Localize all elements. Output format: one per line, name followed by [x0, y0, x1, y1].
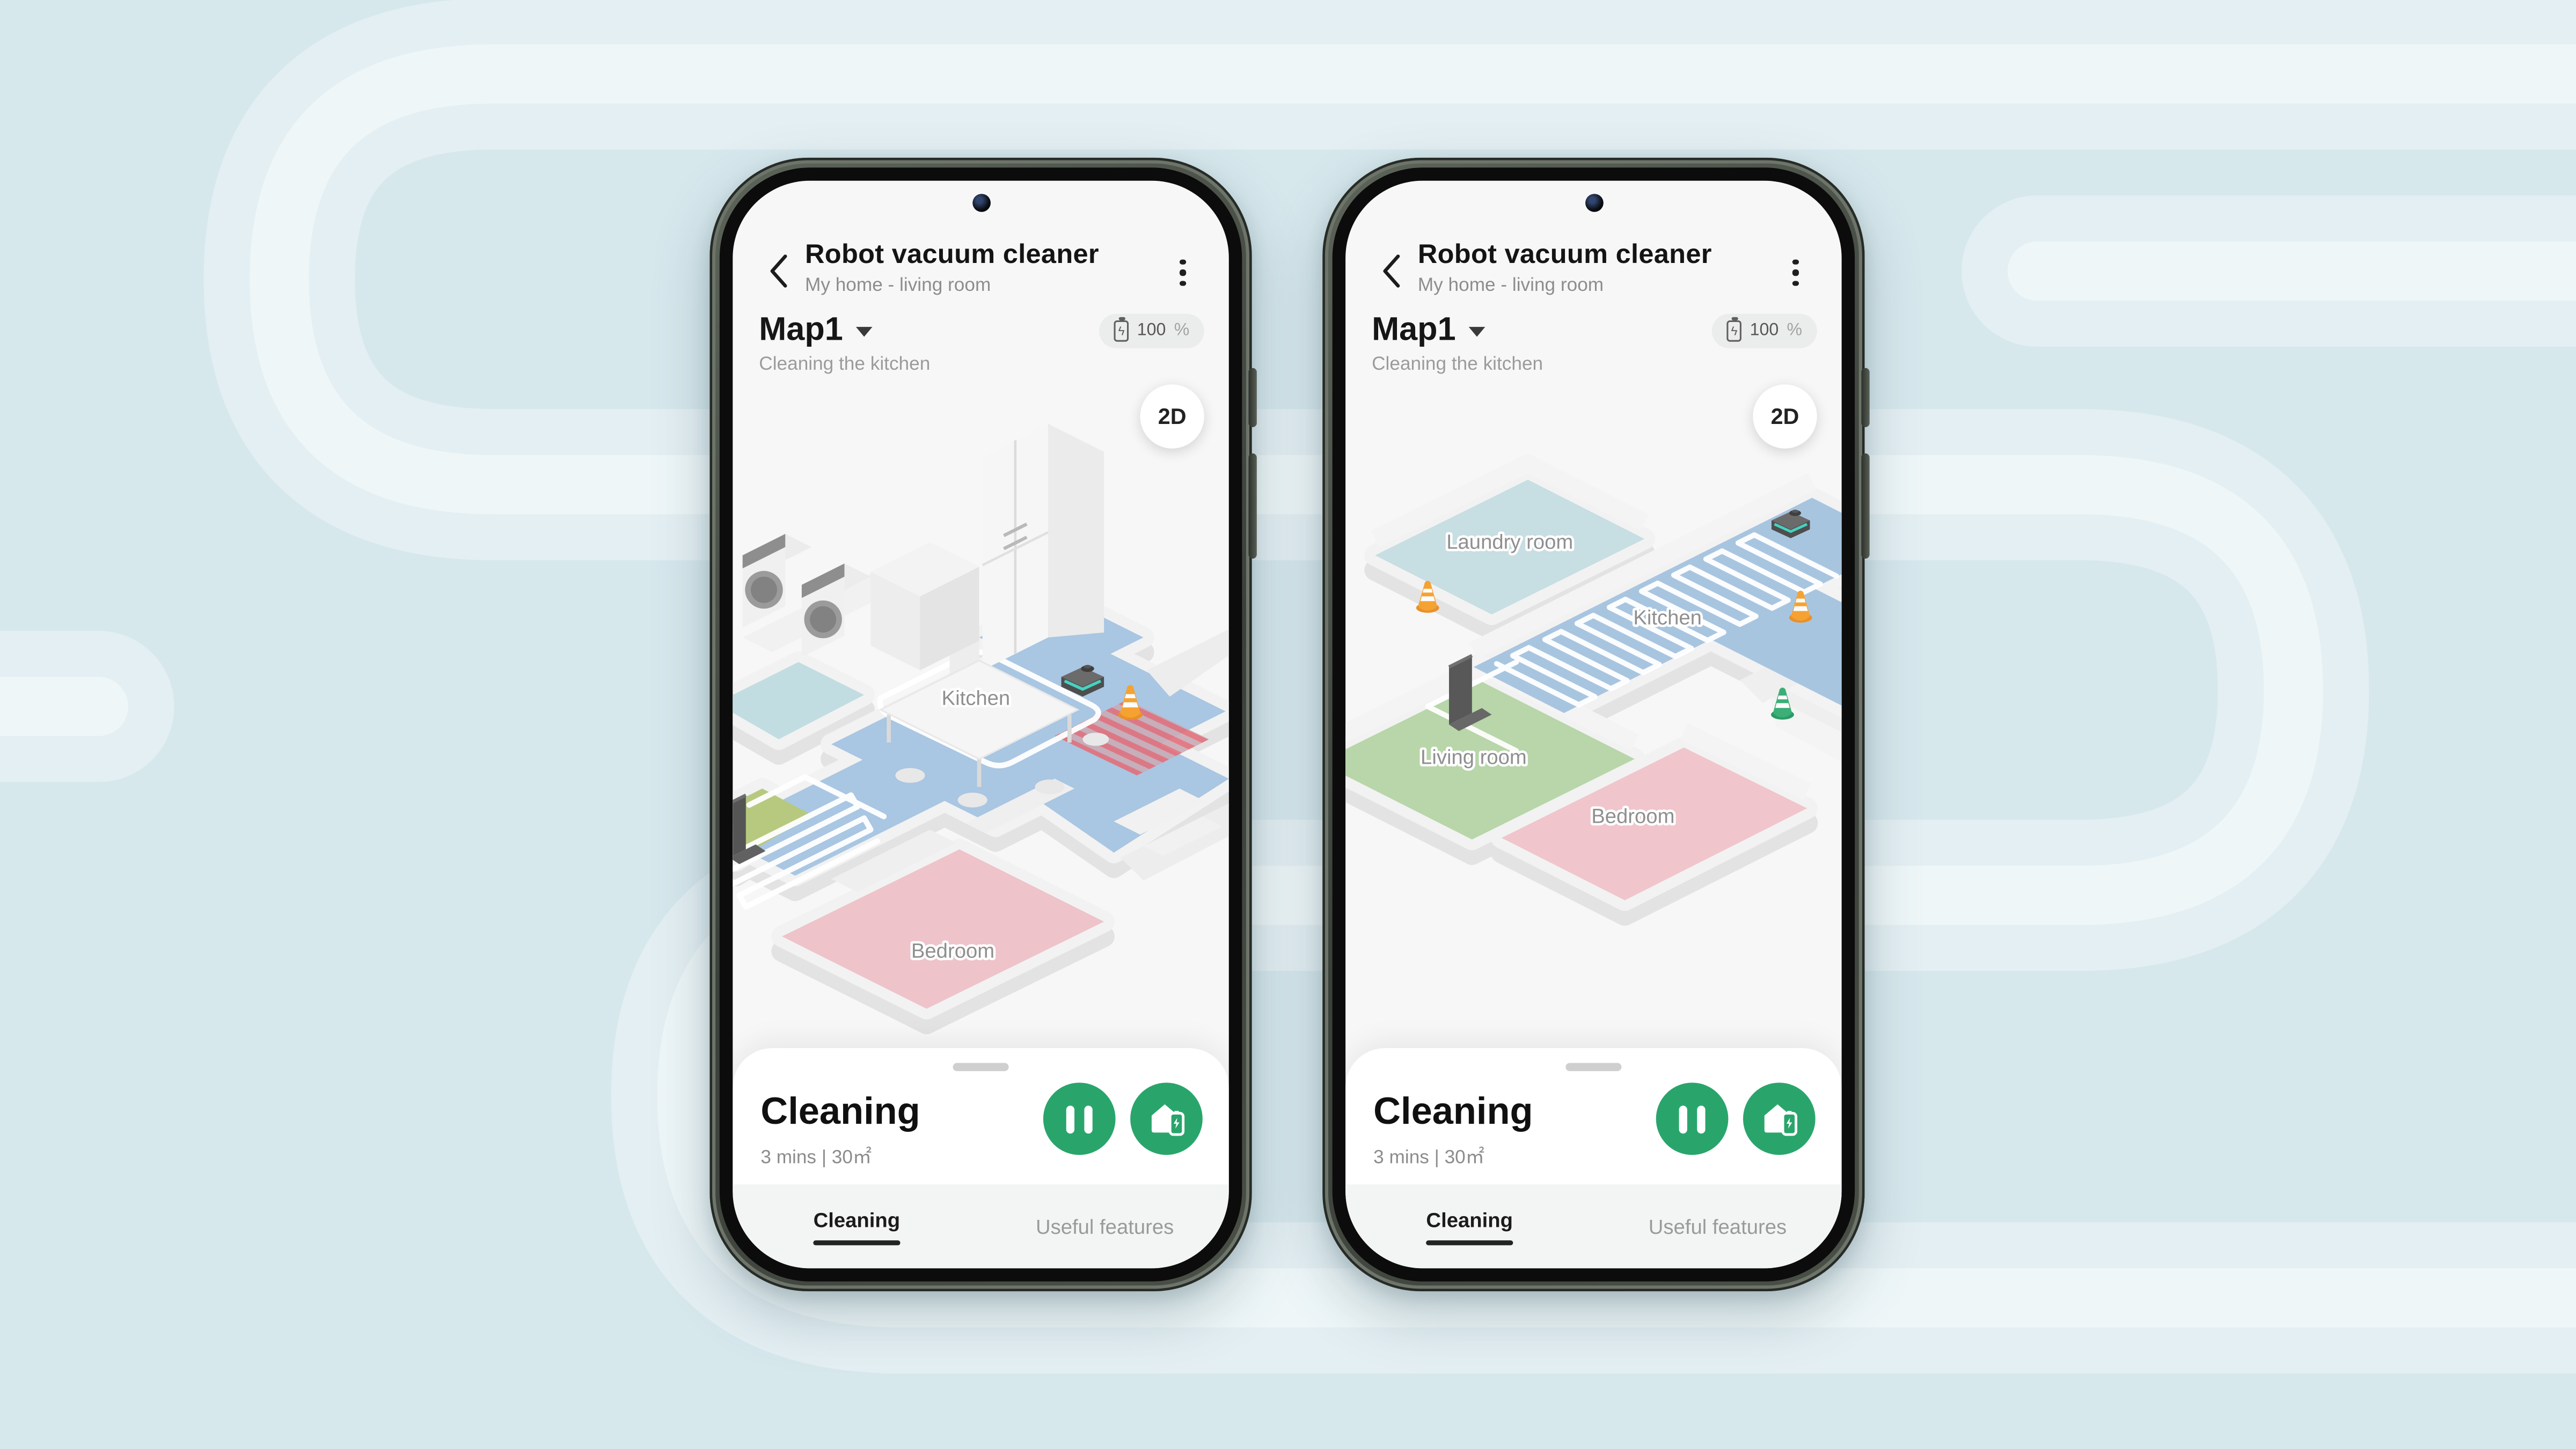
phone-left: Robot vacuum cleaner My home - living ro… [709, 158, 1252, 1291]
tab-cleaning-label: Cleaning [1426, 1209, 1513, 1245]
floor-map-3d[interactable]: Laundry room Kitchen Living room Bedroom [1345, 391, 1841, 1101]
battery-icon: ϟ [1114, 320, 1129, 342]
page-title: Robot vacuum cleaner [1418, 240, 1763, 271]
phone-screen-right: Robot vacuum cleaner My home - living ro… [1345, 181, 1841, 1269]
map-selector-label: Map1 [1372, 312, 1456, 350]
more-menu-button[interactable] [1766, 243, 1825, 302]
tab-cleaning[interactable]: Cleaning [733, 1184, 980, 1268]
page-subtitle: My home - living room [1418, 276, 1763, 296]
tab-useful-features-label: Useful features [1649, 1216, 1787, 1239]
room-label-bedroom: Bedroom [1591, 805, 1674, 828]
phone-right: Robot vacuum cleaner My home - living ro… [1322, 158, 1864, 1291]
tab-useful-features[interactable]: Useful features [1593, 1184, 1841, 1268]
pause-button[interactable] [1656, 1082, 1729, 1155]
return-to-dock-button[interactable] [1743, 1082, 1816, 1155]
battery-unit: % [1787, 321, 1803, 341]
cleaning-status-text: Cleaning the kitchen [759, 355, 1203, 375]
map-selector[interactable]: Map1 [759, 312, 873, 350]
tab-cleaning-label: Cleaning [814, 1209, 901, 1245]
battery-value: 100 [1137, 321, 1166, 341]
tab-bar: Cleaning Useful features [1345, 1184, 1841, 1268]
sheet-drag-handle[interactable] [1565, 1063, 1621, 1071]
view-toggle-2d-button[interactable]: 2D [1753, 384, 1817, 448]
washer-dryer [743, 534, 979, 670]
chevron-down-icon [1469, 328, 1485, 338]
page-subtitle: My home - living room [805, 276, 1150, 296]
battery-icon: ϟ [1727, 320, 1742, 342]
room-label-living: Living room [1421, 745, 1527, 769]
bottom-sheet: Cleaning 3 mins | 30㎡ Cleaning Useful fe… [1345, 1048, 1841, 1268]
floor-map-3d[interactable]: Kitchen Bedroom [733, 391, 1228, 1101]
pause-icon [1066, 1105, 1093, 1133]
view-toggle-2d-button[interactable]: 2D [1140, 384, 1204, 448]
power-button[interactable] [1249, 453, 1256, 559]
battery-unit: % [1174, 321, 1190, 341]
phone-screen-left: Robot vacuum cleaner My home - living ro… [733, 181, 1228, 1269]
chevron-down-icon [856, 328, 873, 338]
room-label-bedroom: Bedroom [911, 940, 994, 963]
volume-button[interactable] [1861, 368, 1869, 427]
chevron-left-icon [767, 252, 791, 288]
pause-button[interactable] [1043, 1082, 1116, 1155]
refrigerator [983, 424, 1104, 670]
battery-value: 100 [1750, 321, 1779, 341]
battery-status: ϟ 100% [1712, 314, 1817, 348]
room-label-kitchen: Kitchen [942, 686, 1011, 709]
sheet-drag-handle[interactable] [953, 1063, 1009, 1071]
stage: Robot vacuum cleaner My home - living ro… [0, 0, 2576, 1449]
home-charge-icon [1147, 1101, 1185, 1137]
back-button[interactable] [1365, 243, 1418, 302]
cleaning-state-title: Cleaning [1373, 1089, 1533, 1134]
bottom-sheet: Cleaning 3 mins | 30㎡ Cleaning Useful fe… [733, 1048, 1228, 1268]
power-button[interactable] [1861, 453, 1869, 559]
more-menu-button[interactable] [1153, 243, 1212, 302]
tab-useful-features[interactable]: Useful features [981, 1184, 1229, 1268]
map-selector[interactable]: Map1 [1372, 312, 1485, 350]
pause-icon [1679, 1105, 1706, 1133]
tab-useful-features-label: Useful features [1036, 1216, 1174, 1239]
chevron-left-icon [1380, 252, 1403, 288]
return-to-dock-button[interactable] [1130, 1082, 1203, 1155]
tab-cleaning[interactable]: Cleaning [1345, 1184, 1593, 1268]
battery-status: ϟ 100% [1099, 314, 1204, 348]
volume-button[interactable] [1249, 368, 1256, 427]
room-label-laundry: Laundry room [1446, 530, 1573, 553]
page-title: Robot vacuum cleaner [805, 240, 1150, 271]
cleaning-status-text: Cleaning the kitchen [1372, 355, 1816, 375]
map-selector-label: Map1 [759, 312, 843, 350]
home-charge-icon [1760, 1101, 1798, 1137]
cleaning-meta: 3 mins | 30㎡ [760, 1144, 872, 1170]
room-label-kitchen: Kitchen [1633, 606, 1702, 629]
back-button[interactable] [752, 243, 805, 302]
background-path-pattern [0, 0, 2576, 1449]
cleaning-meta: 3 mins | 30㎡ [1373, 1144, 1484, 1170]
cleaning-state-title: Cleaning [760, 1089, 920, 1134]
tab-bar: Cleaning Useful features [733, 1184, 1228, 1268]
